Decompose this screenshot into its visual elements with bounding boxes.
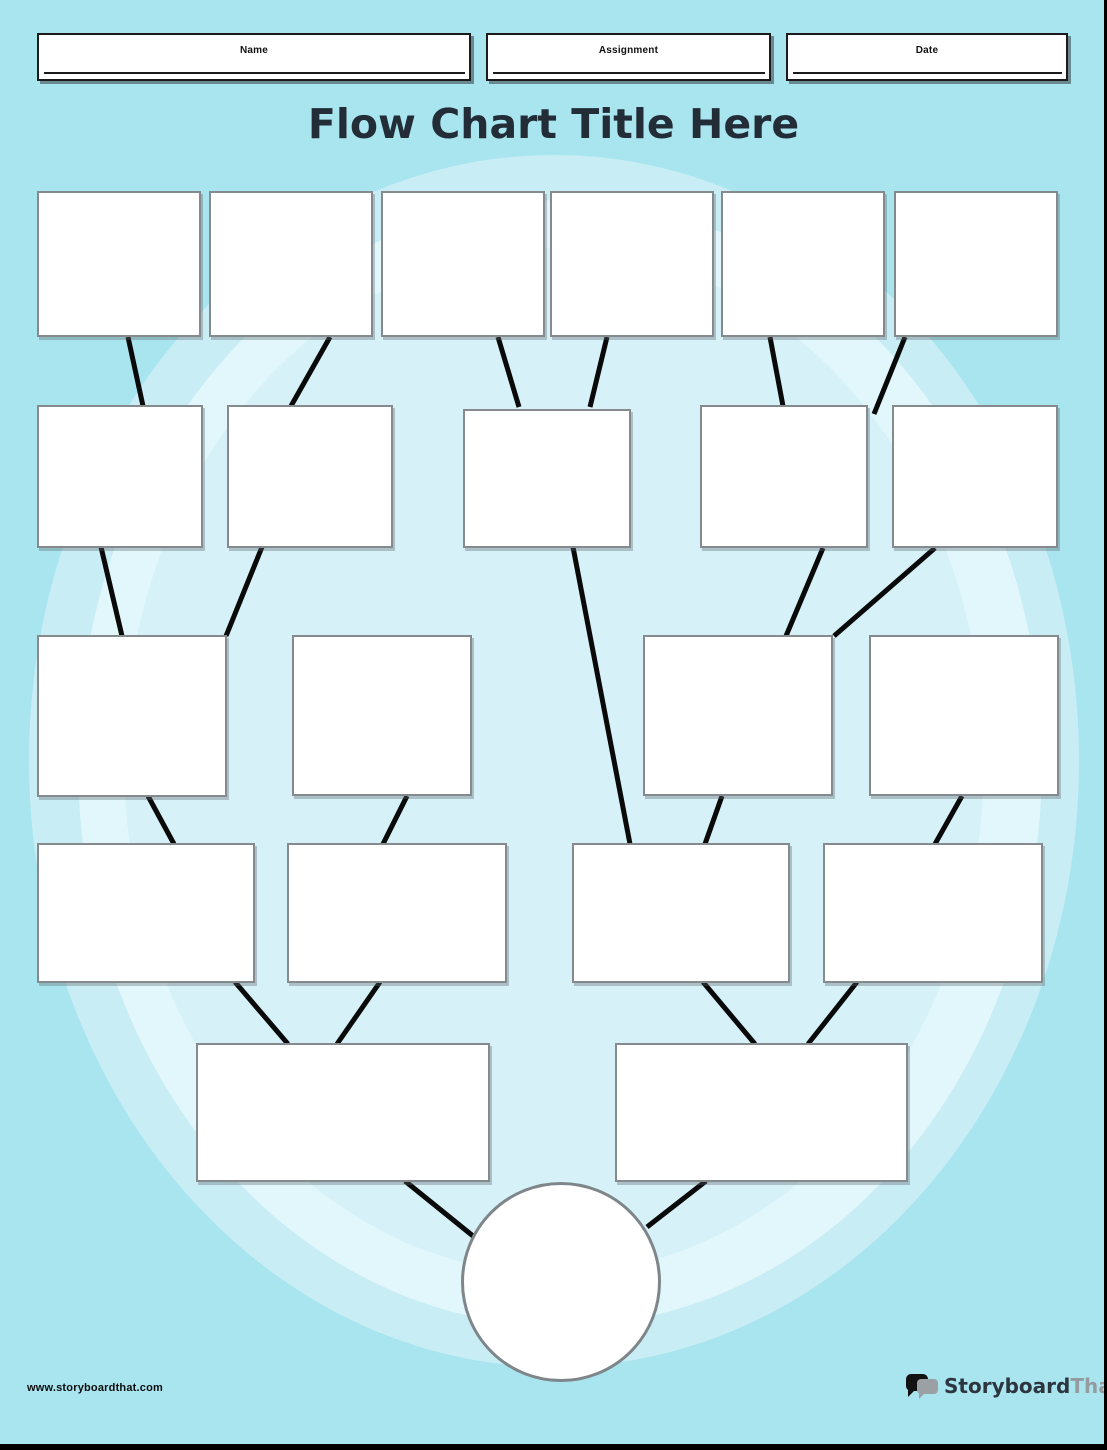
flow-node-r4-2[interactable] [287, 843, 507, 983]
page-edge-bar-bottom [0, 1444, 1107, 1450]
name-field[interactable]: Name [37, 33, 471, 81]
assignment-write-line [493, 72, 765, 74]
logo-text-that: That [1070, 1374, 1107, 1398]
flow-node-r1-5[interactable] [721, 191, 885, 337]
flow-node-r4-3[interactable] [572, 843, 790, 983]
flow-node-terminal-circle[interactable] [461, 1182, 661, 1382]
assignment-field-label: Assignment [488, 45, 769, 56]
logo-text: StoryboardThat [944, 1374, 1107, 1398]
storyboardthat-logo: StoryboardThat [906, 1371, 1107, 1401]
flow-node-r3-1[interactable] [37, 635, 227, 797]
logo-text-storyboard: Storyboard [944, 1374, 1070, 1398]
flow-node-r2-1[interactable] [37, 405, 203, 548]
flow-node-r1-4[interactable] [550, 191, 714, 337]
flow-node-r4-1[interactable] [37, 843, 255, 983]
assignment-field[interactable]: Assignment [486, 33, 771, 81]
flow-chart-worksheet: Name Assignment Date Flow Chart Title He… [0, 0, 1107, 1450]
flow-node-r3-2[interactable] [292, 635, 472, 796]
flow-node-r3-3[interactable] [643, 635, 833, 796]
flow-node-r1-2[interactable] [209, 191, 373, 337]
date-field[interactable]: Date [786, 33, 1068, 81]
speech-bubbles-icon [906, 1372, 944, 1400]
flow-node-r5-2[interactable] [615, 1043, 908, 1182]
flow-node-r2-2[interactable] [227, 405, 393, 548]
date-field-label: Date [788, 45, 1066, 56]
name-write-line [44, 72, 465, 74]
page-title: Flow Chart Title Here [0, 100, 1107, 148]
flow-node-r2-4[interactable] [700, 405, 868, 548]
flow-node-r1-1[interactable] [37, 191, 201, 337]
date-write-line [793, 72, 1062, 74]
flow-node-r2-5[interactable] [892, 405, 1058, 548]
flow-node-r5-1[interactable] [196, 1043, 490, 1182]
name-field-label: Name [39, 45, 469, 56]
flow-node-r1-3[interactable] [381, 191, 545, 337]
flow-node-r2-3[interactable] [463, 409, 631, 548]
flow-node-r3-4[interactable] [869, 635, 1059, 796]
flow-node-r1-6[interactable] [894, 191, 1058, 337]
website-url: www.storyboardthat.com [27, 1382, 163, 1394]
flow-node-r4-4[interactable] [823, 843, 1043, 983]
